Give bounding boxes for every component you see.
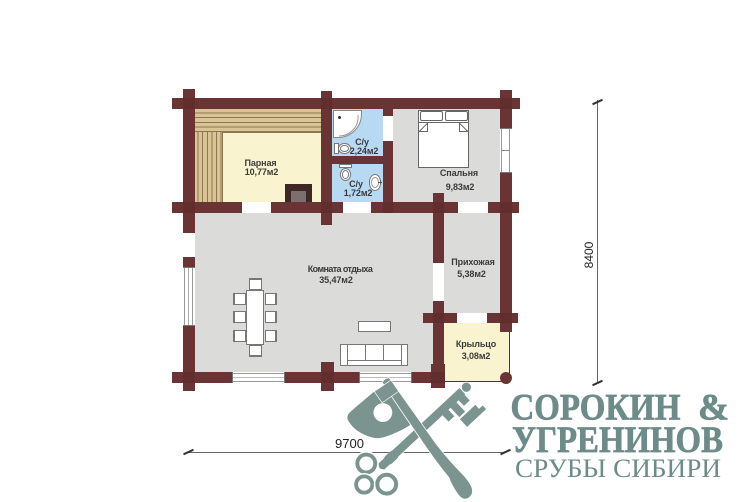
svg-text:СРУБЫ СИБИРИ: СРУБЫ СИБИРИ <box>515 453 721 483</box>
